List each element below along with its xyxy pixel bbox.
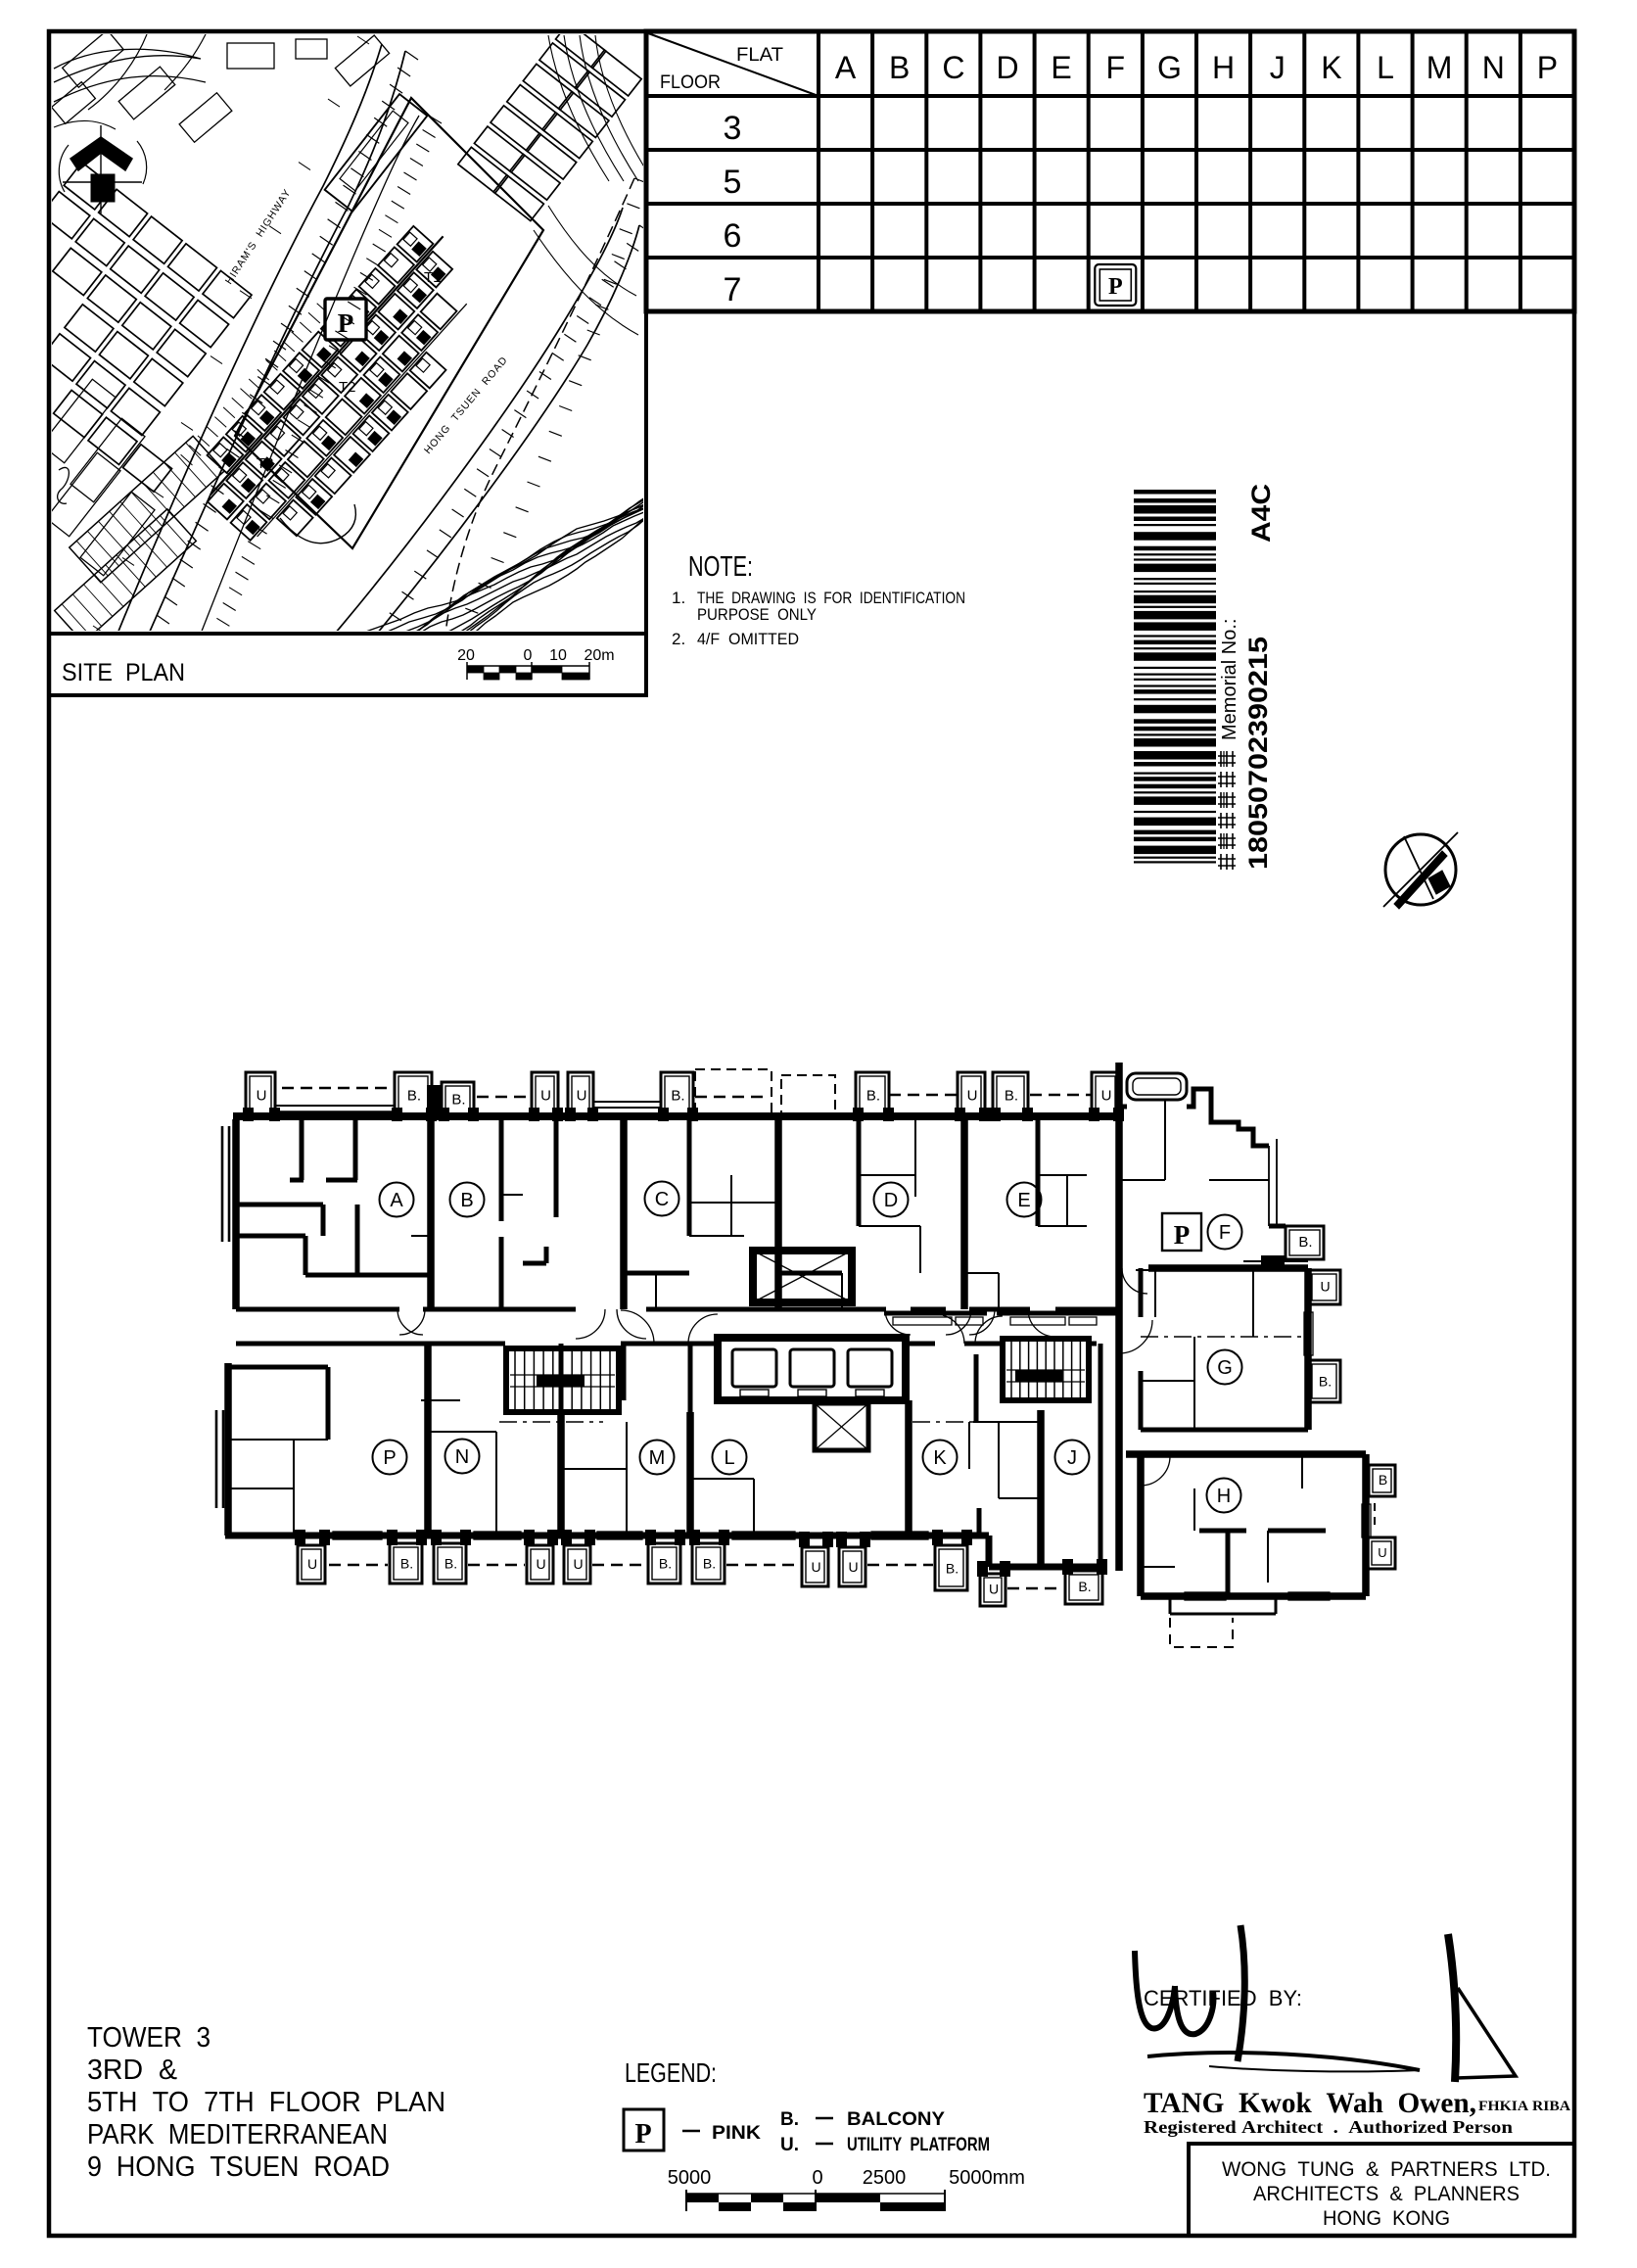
svg-text:6: 6	[724, 217, 742, 255]
svg-text:2.: 2.	[672, 630, 685, 648]
svg-text:TANG Kwok Wah Owen,: TANG Kwok Wah Owen,	[1144, 2087, 1476, 2119]
svg-text:BALCONY: BALCONY	[847, 2109, 945, 2130]
svg-text:5000: 5000	[668, 2167, 712, 2189]
svg-text:Registered Architect . Autho: Registered Architect . Authorized Person	[1144, 2117, 1513, 2137]
svg-text:C: C	[942, 50, 964, 85]
svg-text:U: U	[848, 1559, 858, 1575]
svg-text:U: U	[577, 1088, 587, 1105]
svg-text:B.: B.	[451, 1091, 465, 1108]
svg-text:D: D	[884, 1190, 898, 1211]
svg-text:B.: B.	[1319, 1374, 1332, 1390]
svg-text:FLOOR: FLOOR	[660, 72, 721, 93]
svg-text:LEGEND:: LEGEND:	[625, 2057, 717, 2088]
svg-text:N: N	[1482, 50, 1505, 85]
svg-text:G: G	[1217, 1357, 1233, 1379]
svg-text:0: 0	[812, 2167, 822, 2189]
svg-text:H: H	[1217, 1486, 1231, 1507]
svg-text:B: B	[1379, 1472, 1387, 1488]
svg-text:NOTE:: NOTE:	[688, 551, 753, 583]
svg-text:U: U	[536, 1556, 545, 1572]
svg-text:G: G	[1157, 50, 1182, 85]
svg-text:B.: B.	[407, 1088, 421, 1105]
svg-text:C: C	[655, 1189, 669, 1210]
svg-text:B.: B.	[1078, 1579, 1091, 1594]
svg-text:T2: T2	[339, 379, 356, 396]
svg-text:U: U	[1320, 1279, 1330, 1295]
svg-text:B.: B.	[703, 1555, 716, 1571]
svg-text:B.: B.	[1298, 1234, 1312, 1251]
svg-text:F: F	[1106, 50, 1126, 85]
svg-text:K: K	[933, 1447, 947, 1469]
svg-text:U: U	[1378, 1545, 1386, 1560]
svg-text:P: P	[1174, 1220, 1191, 1250]
svg-text:E: E	[1017, 1190, 1030, 1211]
svg-text:J: J	[1067, 1447, 1077, 1469]
svg-text:TOWER 3: TOWER 3	[87, 2022, 210, 2054]
svg-text:L: L	[724, 1447, 734, 1469]
svg-text:PINK: PINK	[712, 2123, 761, 2144]
svg-text:P: P	[1108, 274, 1123, 300]
svg-text:B.: B.	[671, 1088, 684, 1105]
svg-text:PARK MEDITERRANEAN: PARK MEDITERRANEAN	[87, 2119, 388, 2150]
svg-text:ARCHITECTS & PLANNERS: ARCHITECTS & PLANNERS	[1253, 2183, 1520, 2205]
svg-text:M: M	[649, 1447, 666, 1469]
svg-text:20m: 20m	[584, 647, 614, 664]
svg-text:D: D	[996, 50, 1018, 85]
svg-text:U: U	[811, 1559, 820, 1575]
svg-text:E: E	[1051, 50, 1071, 85]
svg-text:U: U	[989, 1582, 999, 1597]
svg-text:A4C: A4C	[1246, 484, 1276, 543]
svg-text:J: J	[1270, 50, 1286, 85]
svg-text:7: 7	[724, 271, 742, 308]
svg-text:B: B	[460, 1190, 473, 1211]
svg-text:P: P	[634, 2119, 651, 2150]
svg-text:9 HONG TSUEN ROAD: 9 HONG TSUEN ROAD	[87, 2151, 390, 2183]
svg-text:U: U	[257, 1088, 267, 1105]
svg-text:K: K	[1321, 50, 1341, 85]
svg-text:5000mm: 5000mm	[949, 2167, 1025, 2189]
svg-text:B.: B.	[946, 1561, 959, 1577]
svg-text:B.: B.	[444, 1555, 457, 1571]
svg-text:CERTIFIED BY:: CERTIFIED BY:	[1144, 1986, 1302, 2010]
svg-text:SITE PLAN: SITE PLAN	[62, 659, 185, 686]
svg-text:4/F OMITTED: 4/F OMITTED	[697, 630, 799, 648]
svg-text:H: H	[1212, 50, 1235, 85]
svg-text:B: B	[889, 50, 910, 85]
svg-text:U: U	[967, 1088, 978, 1105]
svg-text:U: U	[540, 1088, 551, 1105]
svg-text:B.: B.	[866, 1088, 880, 1105]
svg-text:UTILITY PLATFORM: UTILITY PLATFORM	[847, 2135, 990, 2155]
svg-text:Memorial No.:: Memorial No.:	[1219, 619, 1240, 740]
svg-text:10: 10	[549, 647, 567, 664]
svg-text:U: U	[573, 1556, 583, 1572]
svg-text:A: A	[390, 1190, 403, 1211]
svg-text:A: A	[835, 50, 857, 85]
svg-text:0: 0	[524, 647, 533, 664]
svg-text:3: 3	[724, 110, 742, 147]
svg-text:HONG KONG: HONG KONG	[1323, 2207, 1450, 2230]
svg-text:U: U	[307, 1556, 317, 1572]
svg-text:B.: B.	[400, 1555, 413, 1571]
svg-text:3RD &: 3RD &	[87, 2055, 177, 2086]
svg-text:U: U	[1101, 1088, 1112, 1105]
svg-text:U.: U.	[780, 2135, 799, 2155]
svg-text:M: M	[1427, 50, 1453, 85]
svg-text:P: P	[1537, 50, 1558, 85]
svg-text:5: 5	[724, 164, 742, 201]
svg-text:P: P	[383, 1447, 396, 1469]
svg-text:F: F	[1219, 1222, 1231, 1244]
svg-text:20: 20	[457, 647, 475, 664]
svg-text:PURPOSE ONLY: PURPOSE ONLY	[697, 605, 817, 624]
svg-text:WONG TUNG & PARTNERS LTD.: WONG TUNG & PARTNERS LTD.	[1222, 2158, 1551, 2181]
svg-text:1.: 1.	[672, 589, 685, 607]
svg-text:N: N	[455, 1446, 469, 1468]
svg-text:FHKIA RIBA: FHKIA RIBA	[1478, 2099, 1570, 2114]
svg-text:18050702390215: 18050702390215	[1243, 637, 1273, 870]
svg-text:T1: T1	[424, 269, 442, 286]
svg-text:B.: B.	[659, 1555, 672, 1571]
svg-text:2500: 2500	[863, 2167, 907, 2189]
svg-text:5TH TO 7TH FLOOR PLAN: 5TH TO 7TH FLOOR PLAN	[87, 2087, 445, 2118]
svg-text:FLAT: FLAT	[736, 45, 783, 66]
svg-text:L: L	[1377, 50, 1394, 85]
svg-text:B.: B.	[780, 2109, 799, 2130]
svg-text:B.: B.	[1005, 1088, 1018, 1105]
